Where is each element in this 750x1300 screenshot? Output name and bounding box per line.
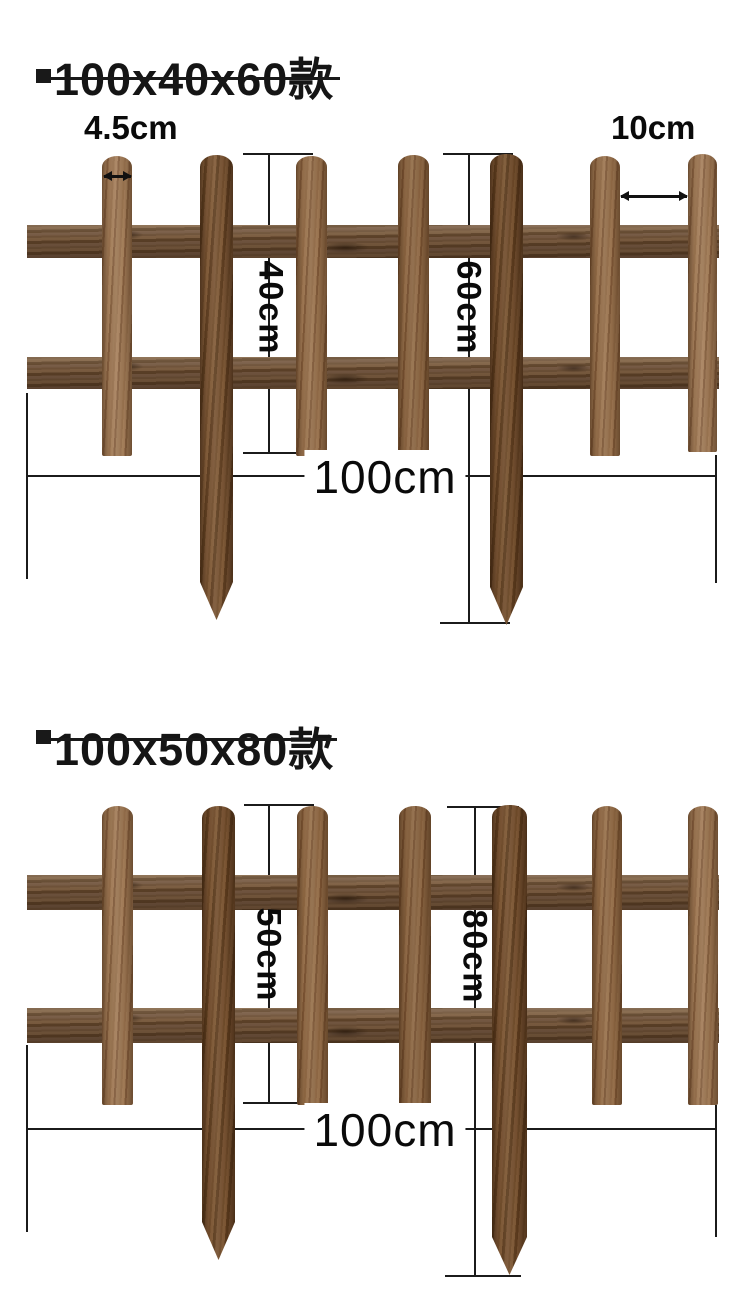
fence-picket-7 — [688, 154, 717, 452]
total-width-label: 100cm — [304, 1103, 465, 1157]
fence-stake-2 — [202, 806, 235, 1260]
dim-tick-stake-height-bottom — [440, 622, 510, 624]
picket-width-arrow-icon — [104, 175, 131, 178]
picket-height-label: 50cm — [249, 908, 288, 1003]
fence-stake-5 — [490, 154, 523, 625]
fence-picket-1 — [102, 156, 132, 456]
dim-tick-total-width-left — [26, 393, 28, 579]
product-dimension-diagram: 100x40x60款 4.5cm 10cm 40cm 60cm 100cm — [0, 0, 750, 1300]
title-underline — [40, 77, 340, 80]
fence-picket-3 — [297, 806, 328, 1105]
figure-title: 100x50x80款 — [54, 725, 334, 775]
fence-picket-6 — [592, 806, 622, 1105]
dim-tick-picket-height-top — [244, 804, 314, 806]
dim-tick-total-width-left — [26, 1045, 28, 1232]
dim-tick-stake-height-bottom — [445, 1275, 521, 1277]
gap-width-arrow-icon — [621, 195, 687, 198]
title-underline — [40, 738, 337, 741]
fence-picket-4 — [399, 806, 431, 1105]
fence-picket-4 — [398, 155, 429, 456]
stake-height-label: 80cm — [455, 910, 494, 1005]
picket-width-label: 4.5cm — [84, 109, 178, 147]
dim-tick-total-width-right — [715, 455, 717, 583]
fence-picket-1 — [102, 806, 133, 1105]
fence-picket-7 — [688, 806, 718, 1105]
fence-stake-5 — [492, 805, 527, 1275]
fence-picket-6 — [590, 156, 620, 456]
dim-tick-picket-height-top — [243, 153, 313, 155]
fence-stake-2 — [200, 155, 233, 620]
total-width-label: 100cm — [304, 450, 465, 504]
dim-tick-total-width-right — [715, 1105, 717, 1237]
stake-height-label: 60cm — [449, 261, 488, 356]
title-underline-marker — [36, 69, 51, 83]
picket-height-label: 40cm — [251, 261, 290, 356]
gap-width-label: 10cm — [611, 109, 695, 147]
figure-title: 100x40x60款 — [54, 55, 334, 105]
fence-picket-3 — [296, 156, 327, 456]
title-underline-marker — [36, 730, 51, 744]
